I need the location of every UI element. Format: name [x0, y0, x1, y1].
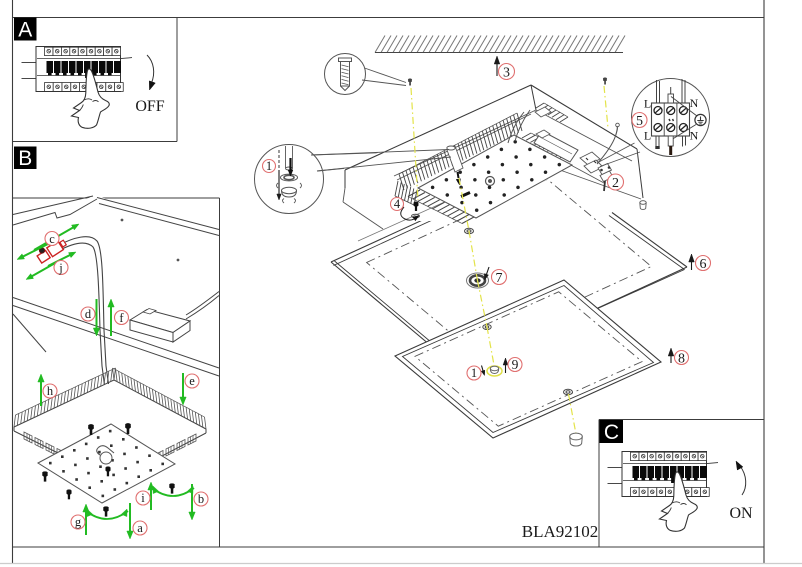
svg-text:A: A — [18, 19, 32, 42]
svg-text:ON: ON — [729, 505, 753, 522]
svg-text:8: 8 — [678, 351, 685, 366]
svg-text:h: h — [47, 384, 54, 398]
svg-text:a: a — [137, 521, 143, 535]
svg-text:e: e — [189, 374, 195, 388]
svg-text:L: L — [644, 97, 651, 111]
svg-text:N: N — [690, 96, 699, 110]
svg-text:B: B — [18, 147, 32, 170]
svg-text:BLA92102: BLA92102 — [522, 522, 599, 541]
svg-text:7: 7 — [496, 271, 503, 286]
svg-text:3: 3 — [503, 65, 510, 80]
svg-text:6: 6 — [700, 257, 707, 272]
svg-text:9: 9 — [512, 357, 519, 372]
svg-text:C: C — [604, 421, 619, 444]
svg-text:L: L — [644, 129, 651, 143]
svg-text:1: 1 — [266, 159, 272, 173]
svg-text:1: 1 — [471, 366, 477, 380]
svg-text:d: d — [85, 307, 92, 321]
svg-text:N: N — [690, 129, 699, 143]
svg-text:b: b — [198, 492, 204, 506]
svg-text:i: i — [141, 491, 145, 505]
svg-text:4: 4 — [394, 197, 401, 211]
svg-text:5: 5 — [636, 114, 643, 129]
svg-text:OFF: OFF — [135, 98, 164, 115]
svg-text:c: c — [49, 232, 55, 246]
svg-text:g: g — [75, 515, 82, 529]
svg-text:j: j — [58, 261, 62, 275]
svg-text:2: 2 — [612, 176, 619, 191]
